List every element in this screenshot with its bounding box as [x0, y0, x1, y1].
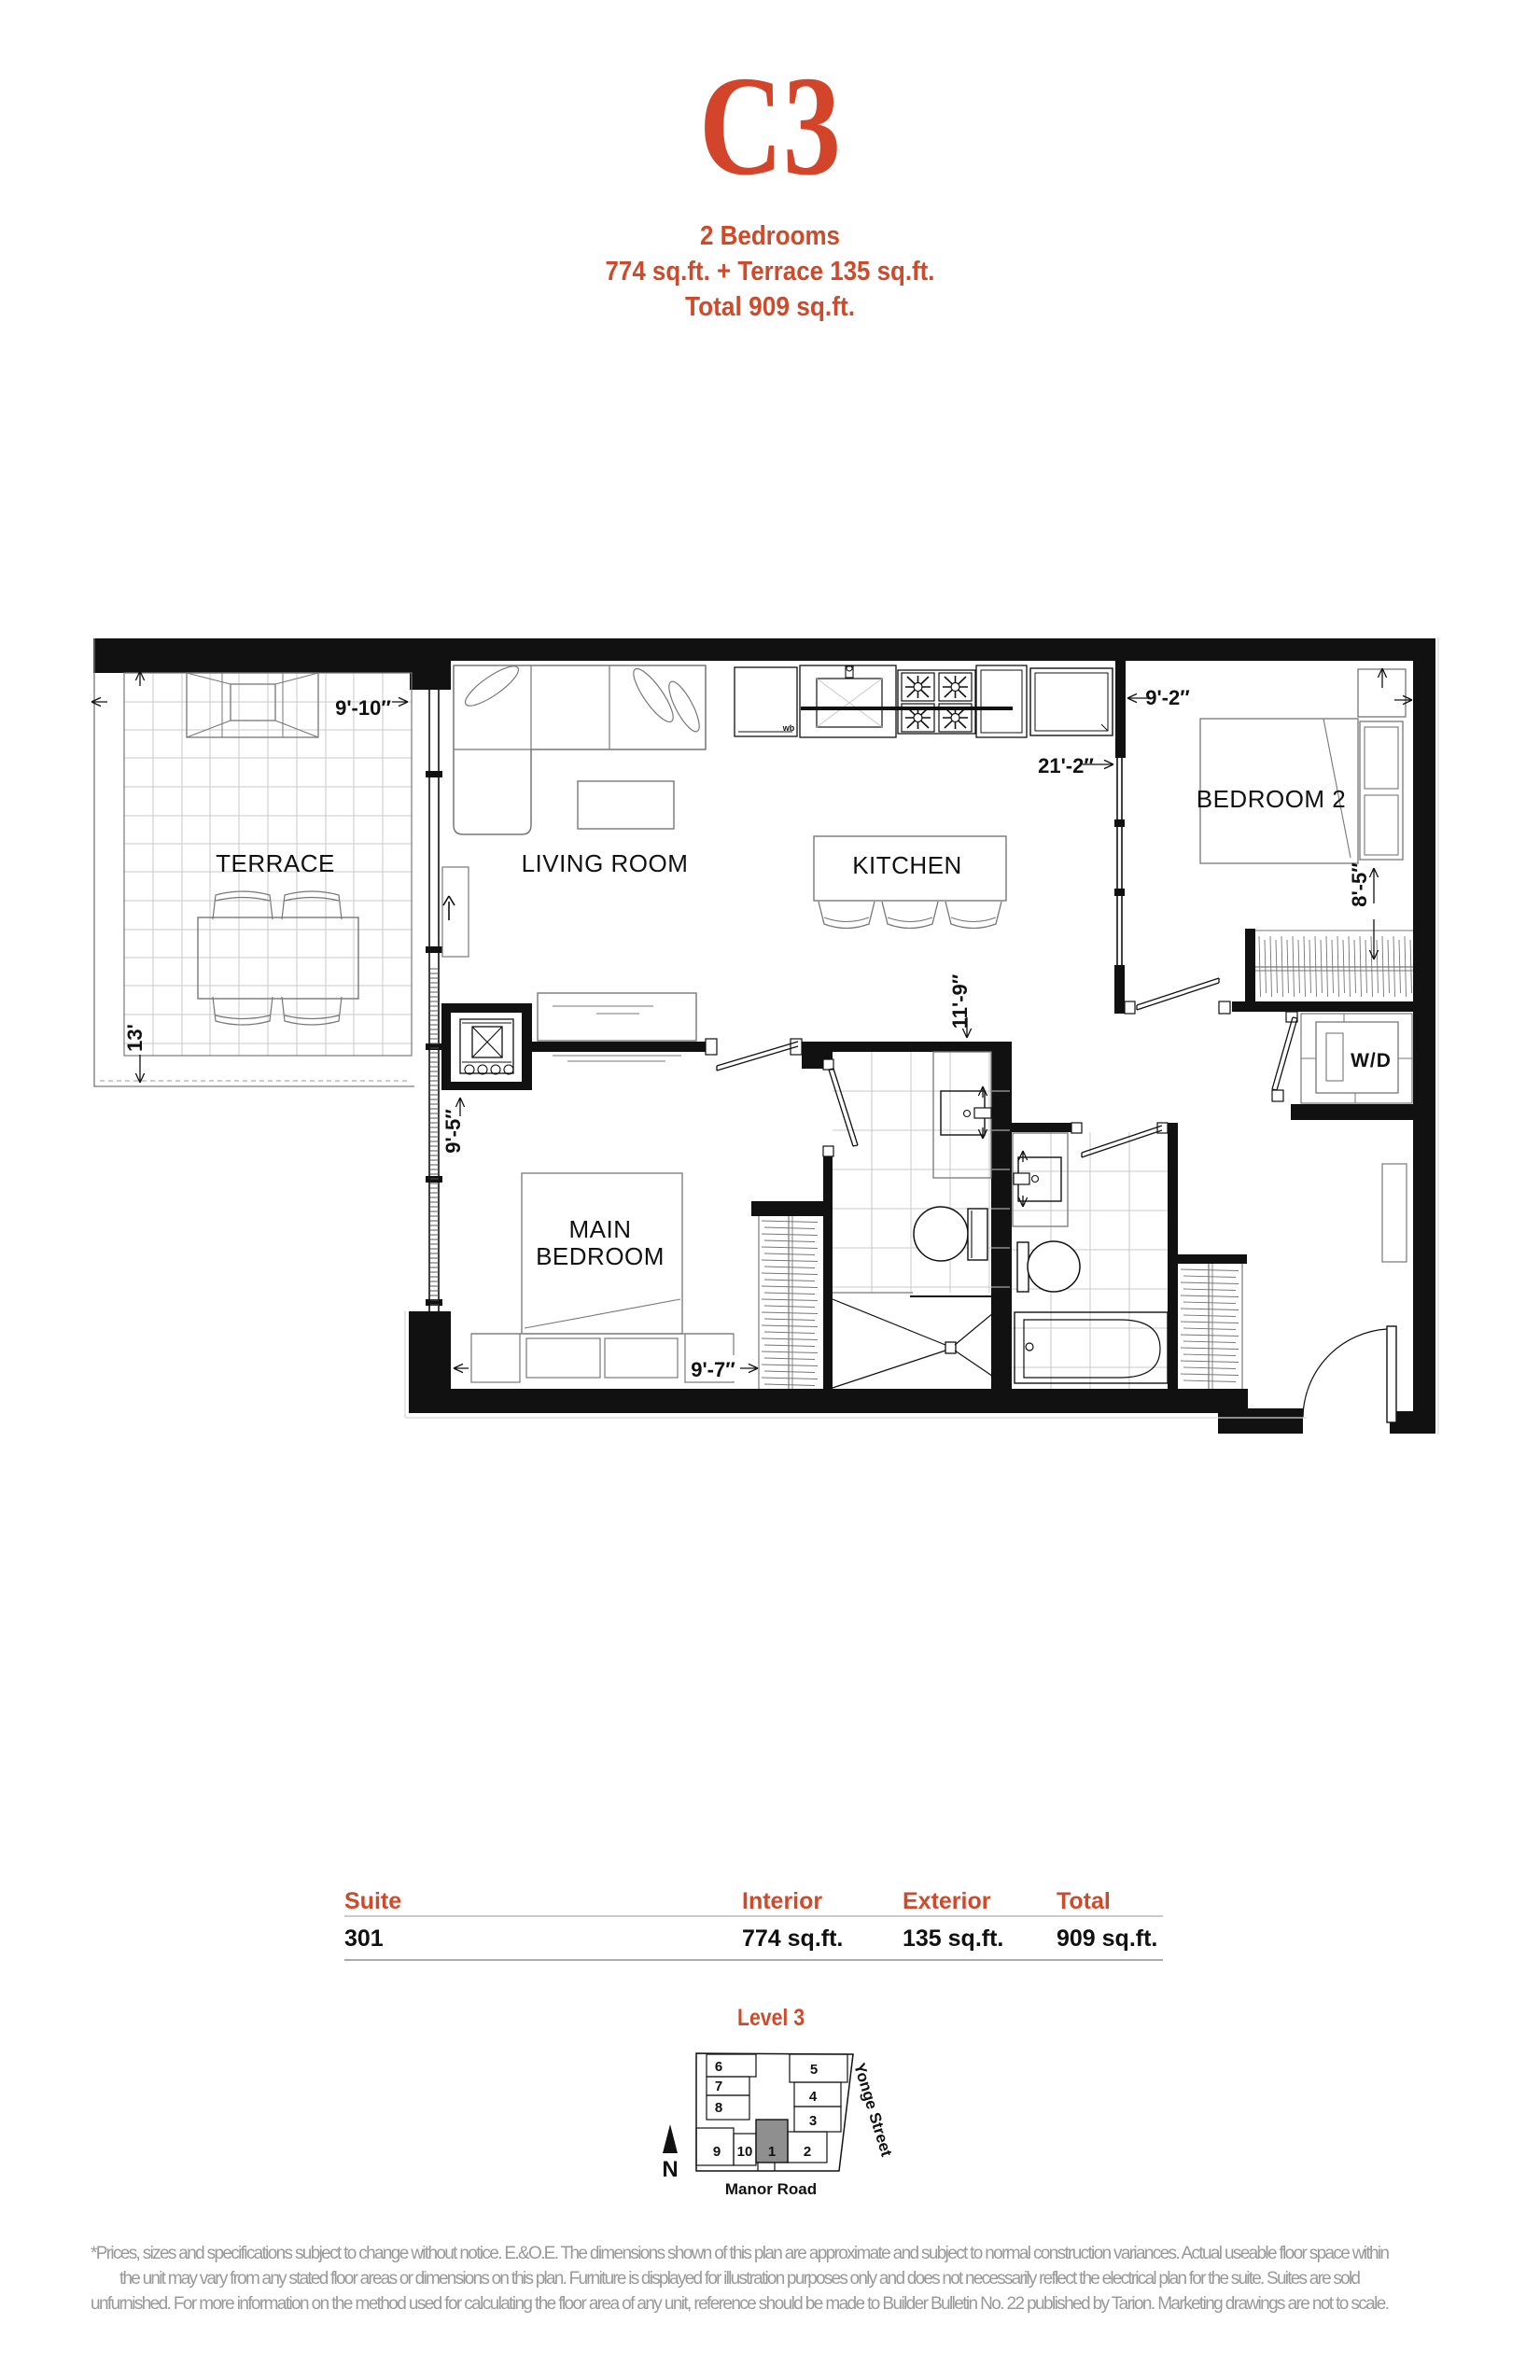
svg-text:9'-2″: 9'-2″: [1145, 686, 1190, 709]
svg-text:3: 3: [809, 2113, 817, 2129]
svg-text:13': 13': [123, 1024, 147, 1052]
svg-text:8'-5″: 8'-5″: [1348, 862, 1371, 907]
svg-text:135 sq.ft.: 135 sq.ft.: [903, 1925, 1003, 1952]
svg-text:unfurnished. For more informat: unfurnished. For more information on the…: [91, 2294, 1390, 2314]
svg-text:10: 10: [737, 2144, 753, 2160]
svg-text:Exterior: Exterior: [903, 1888, 991, 1914]
svg-text:LIVING ROOM: LIVING ROOM: [522, 849, 689, 877]
svg-text:2: 2: [804, 2144, 811, 2160]
svg-text:Manor Road: Manor Road: [725, 2180, 817, 2198]
svg-text:21'-2″: 21'-2″: [1038, 754, 1094, 777]
svg-text:Total: Total: [1057, 1888, 1111, 1914]
svg-text:7: 7: [715, 2079, 722, 2094]
svg-text:6: 6: [715, 2059, 722, 2075]
svg-text:774 sq.ft. + Terrace 135 sq.ft: 774 sq.ft. + Terrace 135 sq.ft.: [606, 257, 935, 287]
svg-text:BEDROOM 2: BEDROOM 2: [1197, 785, 1347, 813]
svg-text:2 Bedrooms: 2 Bedrooms: [700, 221, 840, 251]
svg-text:11'-9″: 11'-9″: [948, 973, 972, 1029]
svg-text:the unit may vary from any sta: the unit may vary from any stated floor …: [119, 2269, 1361, 2289]
svg-text:774 sq.ft.: 774 sq.ft.: [742, 1925, 843, 1952]
svg-text:BEDROOM: BEDROOM: [536, 1242, 665, 1270]
svg-text:MAIN: MAIN: [569, 1215, 632, 1243]
svg-text:9'-7″: 9'-7″: [691, 1358, 735, 1381]
svg-text:Interior: Interior: [742, 1888, 822, 1914]
svg-text:TERRACE: TERRACE: [216, 849, 335, 877]
svg-text:N: N: [662, 2157, 678, 2182]
svg-text:5: 5: [810, 2062, 818, 2078]
svg-text:4: 4: [809, 2089, 818, 2105]
svg-text:9: 9: [713, 2144, 721, 2160]
svg-text:301: 301: [344, 1925, 384, 1952]
svg-text:8: 8: [715, 2100, 722, 2116]
svg-text:wb: wb: [782, 723, 795, 733]
svg-text:9'-5″: 9'-5″: [441, 1109, 465, 1154]
svg-text:W/D: W/D: [1351, 1050, 1392, 1071]
svg-text:909 sq.ft.: 909 sq.ft.: [1057, 1925, 1157, 1952]
svg-text:C3: C3: [699, 48, 841, 205]
svg-text:*Prices, sizes and specificati: *Prices, sizes and specifications subjec…: [91, 2244, 1390, 2263]
svg-text:9'-10″: 9'-10″: [335, 696, 391, 720]
svg-text:Suite: Suite: [344, 1888, 401, 1914]
svg-text:KITCHEN: KITCHEN: [852, 851, 962, 879]
svg-text:1: 1: [768, 2144, 776, 2160]
svg-text:Level 3: Level 3: [737, 2005, 805, 2031]
svg-text:Total 909 sq.ft.: Total 909 sq.ft.: [685, 292, 855, 322]
